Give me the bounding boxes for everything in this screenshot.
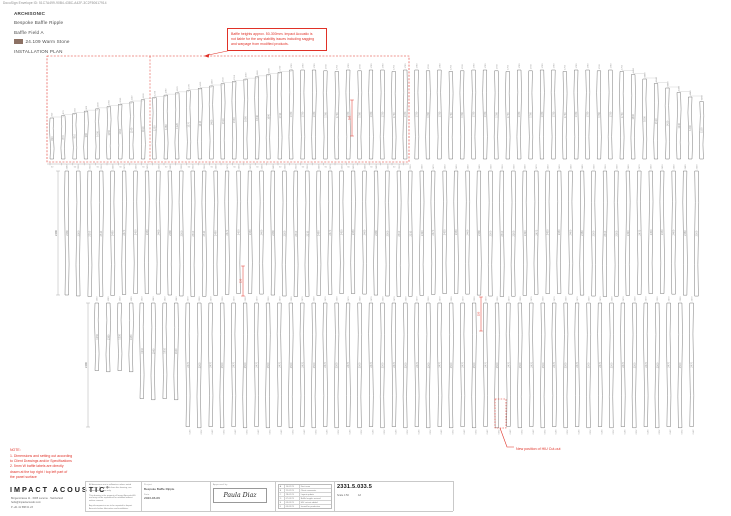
baffle-height-warning-note: Baffle heights approx. 50-300mm. Impact … [227,28,327,51]
svg-text:60: 60 [325,167,328,169]
disclaimer-paragraph: All dimensions are in millimetres unless… [89,484,137,493]
svg-text:2470: 2470 [188,430,190,436]
svg-text:2470: 2470 [552,361,556,367]
baffle-field-label: Baffle Field A [14,30,70,35]
svg-text:1910: 1910 [165,296,167,302]
notes-title: NOTE: [10,448,72,453]
svg-text:2500: 2500 [695,230,699,236]
svg-text:1690: 1690 [266,113,270,119]
svg-text:2500: 2500 [611,296,613,302]
svg-text:2510: 2510 [500,230,504,236]
svg-text:2500: 2500 [520,296,522,302]
svg-text:1230: 1230 [154,90,156,96]
svg-text:2510: 2510 [605,164,607,170]
svg-text:1760: 1760 [428,64,430,70]
svg-text:2500: 2500 [680,296,682,302]
svg-text:2470: 2470 [575,361,579,367]
titleblock-divider [453,481,454,511]
svg-text:2450: 2450 [134,229,138,235]
svg-text:2500: 2500 [488,230,492,236]
svg-text:1050: 1050 [107,129,111,135]
svg-text:2460: 2460 [674,164,676,170]
svg-text:2500: 2500 [449,362,453,368]
svg-text:2470: 2470 [234,430,236,436]
svg-text:2470: 2470 [646,296,648,302]
svg-text:2470: 2470 [463,296,465,302]
svg-text:1780: 1780 [439,63,441,69]
svg-text:1750: 1750 [508,64,510,70]
colour-swatch [14,39,23,44]
svg-text:1090: 1090 [118,128,122,134]
sheet-header: ARCHISONIC Bespoke Baffle Ripple Baffle … [14,11,70,54]
svg-text:2490: 2490 [525,164,527,170]
svg-text:1780: 1780 [551,111,555,117]
svg-text:2470: 2470 [623,430,625,436]
title-block: IMPACT ACOUSTIC® Bürgenstrasse 11 · 6005… [0,480,731,516]
svg-text:820: 820 [52,112,54,116]
svg-text:1760: 1760 [599,64,601,70]
svg-text:2470: 2470 [669,430,671,436]
svg-text:2450: 2450 [445,164,447,170]
svg-text:2500: 2500 [566,430,568,436]
svg-text:2450: 2450 [248,229,252,235]
svg-text:2480: 2480 [67,164,69,170]
svg-text:1350: 1350 [97,296,99,302]
svg-text:2500: 2500 [289,362,293,368]
svg-text:60: 60 [347,167,350,169]
svg-text:2500: 2500 [291,296,293,302]
svg-text:2490: 2490 [111,230,115,236]
svg-text:2500: 2500 [678,362,682,368]
svg-text:2490: 2490 [216,164,218,170]
svg-text:1350: 1350 [118,333,122,339]
svg-text:2470: 2470 [577,296,579,302]
svg-text:2500: 2500 [632,362,636,368]
svg-text:2480: 2480 [273,164,275,170]
svg-text:1760: 1760 [358,111,362,117]
svg-text:2450: 2450 [557,229,561,235]
svg-text:2500: 2500 [222,430,224,436]
svg-text:2510: 2510 [90,164,92,170]
svg-text:2480: 2480 [374,230,378,236]
svg-text:2510: 2510 [204,164,206,170]
svg-text:1460: 1460 [209,119,213,125]
revision-cell: First issue [300,485,331,488]
svg-text:2470: 2470 [186,361,190,367]
svg-text:2470: 2470 [438,361,442,367]
svg-text:2500: 2500 [359,296,361,302]
svg-text:2460: 2460 [569,229,573,235]
svg-text:2510: 2510 [193,164,195,170]
svg-text:2470: 2470 [639,164,641,170]
svg-text:2470: 2470 [461,361,465,367]
svg-text:60: 60 [370,167,373,169]
svg-text:2500: 2500 [405,430,407,436]
svg-text:2480: 2480 [170,164,172,170]
svg-text:2510: 2510 [99,230,103,236]
svg-text:60: 60 [393,167,396,169]
svg-text:1690: 1690 [268,67,270,73]
svg-text:1760: 1760 [323,111,327,117]
svg-text:2500: 2500 [680,430,682,436]
svg-text:1510: 1510 [223,76,225,82]
svg-text:1780: 1780 [380,111,384,117]
svg-text:2500: 2500 [520,430,522,436]
svg-text:2480: 2480 [580,230,584,236]
svg-text:2500: 2500 [428,430,430,436]
svg-text:60: 60 [256,167,259,169]
svg-text:1640: 1640 [255,114,259,120]
svg-text:2480: 2480 [683,230,687,236]
svg-text:1140: 1140 [130,127,134,133]
svg-text:1780: 1780 [483,111,487,117]
svg-text:60: 60 [142,167,145,169]
svg-text:2450: 2450 [651,164,653,170]
svg-text:1320: 1320 [175,122,179,128]
approved-by-label: Approved by [213,484,271,486]
svg-text:2500: 2500 [614,230,618,236]
svg-text:2450: 2450 [342,164,344,170]
svg-text:1780: 1780 [576,63,578,69]
svg-text:1090: 1090 [120,97,122,103]
svg-text:1780: 1780 [382,63,384,69]
svg-text:2500: 2500 [696,164,698,170]
svg-text:1760: 1760 [325,64,327,70]
svg-text:2500: 2500 [268,430,270,436]
svg-text:2470: 2470 [534,229,538,235]
svg-text:960: 960 [84,132,88,137]
svg-text:1330: 1330 [677,122,681,128]
revision-cell: 21.02.23 [285,489,300,492]
general-notes: NOTE: 1. Dimensions and setting out acco… [10,448,72,480]
svg-text:2460: 2460 [158,164,160,170]
titleblock-divider [210,481,211,511]
scale-row: Scale 1:50 A3 [337,494,372,497]
svg-text:2470: 2470 [255,361,259,367]
material-colour-row: 24.109 Warm Stone [14,39,70,44]
svg-text:1750: 1750 [337,64,339,70]
brand-name: ARCHISONIC [14,11,70,16]
svg-text:1240: 1240 [688,125,692,131]
revision-cell: 28.02.23 [285,493,300,496]
svg-text:2500: 2500 [495,362,499,368]
svg-text:1760: 1760 [496,64,498,70]
svg-text:60: 60 [97,167,100,169]
svg-text:1780: 1780 [474,63,476,69]
svg-text:2500: 2500 [268,296,270,302]
revision-row: F09.03.23Issued for production [279,505,331,508]
svg-text:2470: 2470 [417,296,419,302]
approval-block: Approved by Paula Diaz [213,484,271,503]
svg-text:1050: 1050 [109,99,111,105]
svg-text:2470: 2470 [554,296,556,302]
svg-text:2460: 2460 [261,164,263,170]
sheet-size: A3 [358,494,361,497]
svg-text:1780: 1780 [485,63,487,69]
svg-text:1370: 1370 [187,121,191,127]
svg-text:2450: 2450 [454,229,458,235]
svg-text:1780: 1780 [417,63,419,69]
svg-text:1780: 1780 [291,63,293,69]
svg-text:1410: 1410 [200,81,202,87]
svg-text:2500: 2500 [474,296,476,302]
field-value: 2023-03-09 [144,496,204,500]
svg-text:2460: 2460 [259,229,263,235]
svg-text:2510: 2510 [101,164,103,170]
colour-code-label: 24.109 Warm Stone [26,39,70,44]
revision-cell: 07.03.23 [285,497,300,500]
svg-text:960: 960 [86,105,88,109]
disclaimer-text: All dimensions are in millimetres unless… [89,484,137,513]
svg-text:1350: 1350 [95,333,99,339]
svg-text:1780: 1780 [472,111,476,117]
svg-text:2510: 2510 [294,230,298,236]
svg-text:1760: 1760 [494,111,498,117]
svg-text:1760: 1760 [426,111,430,117]
svg-text:2500: 2500 [426,362,430,368]
svg-text:2470: 2470 [302,430,304,436]
svg-text:2470: 2470 [279,430,281,436]
svg-text:2460: 2460 [571,164,573,170]
svg-text:2470: 2470 [669,296,671,302]
svg-text:1940: 1940 [176,296,178,302]
svg-text:2450: 2450 [340,229,344,235]
svg-text:2470: 2470 [323,361,327,367]
titleblock-divider [141,481,142,511]
svg-text:1750: 1750 [620,112,624,118]
svg-text:1510: 1510 [221,118,225,124]
svg-text:60: 60 [188,167,191,169]
svg-text:2490: 2490 [214,230,218,236]
svg-text:1780: 1780 [553,63,555,69]
svg-text:1750: 1750 [335,112,339,118]
svg-text:2490: 2490 [628,164,630,170]
svg-text:2470: 2470 [371,430,373,436]
svg-text:1910: 1910 [140,347,144,353]
svg-text:1000: 1000 [95,130,99,136]
svg-text:2490: 2490 [317,230,321,236]
svg-text:1780: 1780 [312,111,316,117]
revision-cell: HIU cut-out added [300,501,331,504]
svg-text:1280: 1280 [166,88,168,94]
svg-text:1380: 1380 [131,296,133,302]
svg-text:1780: 1780 [301,111,305,117]
svg-text:1190: 1190 [141,126,145,132]
svg-text:1780: 1780 [608,111,612,117]
svg-text:2470: 2470 [369,361,373,367]
svg-text:1750: 1750 [565,64,567,70]
svg-text:2510: 2510 [410,164,412,170]
svg-text:2470: 2470 [463,430,465,436]
svg-text:1600: 1600 [246,72,248,78]
signature: Paula Diaz [223,492,256,499]
svg-text:1730: 1730 [280,65,282,71]
svg-text:1320: 1320 [177,86,179,92]
svg-text:60: 60 [119,167,122,169]
svg-text:2480: 2480 [271,230,275,236]
svg-text:2450: 2450 [135,164,137,170]
svg-text:2470: 2470 [330,164,332,170]
svg-text:2510: 2510 [397,230,401,236]
svg-text:2470: 2470 [188,296,190,302]
svg-text:1600: 1600 [643,116,647,122]
svg-text:2460: 2460 [156,229,160,235]
svg-text:1940: 1940 [174,348,178,354]
svg-text:2500: 2500 [245,296,247,302]
svg-text:2470: 2470 [486,430,488,436]
svg-text:2500: 2500 [513,164,515,170]
svg-text:2470: 2470 [277,361,281,367]
svg-text:2510: 2510 [88,230,92,236]
svg-text:2470: 2470 [577,430,579,436]
svg-text:2470: 2470 [431,229,435,235]
svg-text:910: 910 [75,107,77,111]
svg-text:2500: 2500 [179,230,183,236]
svg-text:1600: 1600 [244,116,248,122]
revision-cell: Baffle lengths revised [300,497,331,500]
svg-text:2500: 2500 [405,296,407,302]
svg-text:1760: 1760 [529,111,533,117]
svg-text:2500: 2500 [387,164,389,170]
svg-text:2500: 2500 [543,296,545,302]
svg-text:2500: 2500 [451,430,453,436]
svg-text:1750: 1750 [622,64,624,70]
svg-text:2470: 2470 [623,296,625,302]
svg-text:2470: 2470 [392,361,396,367]
svg-text:2460: 2460 [466,229,470,235]
revision-cell: 09.03.23 [285,505,300,508]
svg-text:2490: 2490 [319,164,321,170]
docusign-envelope-id: DocuSign Envelope ID: 51C7A499-90B4-438C… [3,1,107,5]
svg-text:1690: 1690 [631,113,635,119]
drawing-number-block: 2331.5.033.5 Scale 1:50 A3 [337,484,372,497]
svg-text:2470: 2470 [637,229,641,235]
svg-text:2470: 2470 [600,296,602,302]
svg-text:2470: 2470 [600,430,602,436]
svg-text:60: 60 [211,167,214,169]
scale-value: Scale 1:50 [337,494,349,497]
svg-text:2490: 2490 [626,230,630,236]
svg-text:2480: 2480 [84,361,88,368]
svg-text:1000: 1000 [97,102,99,108]
svg-text:2470: 2470 [646,430,648,436]
svg-text:1460: 1460 [211,79,213,85]
svg-text:1780: 1780 [369,111,373,117]
svg-text:1750: 1750 [449,112,453,118]
svg-text:1380: 1380 [106,334,110,340]
svg-text:2500: 2500 [634,430,636,436]
svg-text:2500: 2500 [266,362,270,368]
svg-text:1410: 1410 [198,120,202,126]
signature-box: Paula Diaz [213,488,267,503]
svg-text:1780: 1780 [588,63,590,69]
svg-text:2470: 2470 [690,361,694,367]
svg-text:2470: 2470 [348,430,350,436]
note-line: 2. 5mm W baffle labels are directly [10,464,72,469]
svg-text:2470: 2470 [232,361,236,367]
svg-text:870: 870 [61,135,65,140]
svg-text:2500: 2500 [181,164,183,170]
svg-text:2500: 2500 [564,362,568,368]
svg-text:2470: 2470 [257,430,259,436]
svg-text:2490: 2490 [422,164,424,170]
svg-text:1280: 1280 [164,124,168,130]
svg-text:2510: 2510 [502,164,504,170]
svg-text:2450: 2450 [250,164,252,170]
svg-text:2500: 2500 [222,296,224,302]
titleblock-divider [275,481,276,511]
svg-text:2470: 2470 [692,430,694,436]
svg-text:2500: 2500 [657,296,659,302]
svg-text:2460: 2460 [363,229,367,235]
svg-text:2470: 2470 [433,164,435,170]
svg-text:2500: 2500 [428,296,430,302]
titleblock-divider [334,481,335,511]
svg-text:2450: 2450 [351,229,355,235]
svg-text:2490: 2490 [523,230,527,236]
svg-text:2510: 2510 [399,164,401,170]
svg-text:1510: 1510 [654,118,658,124]
svg-text:1780: 1780 [303,63,305,69]
svg-text:1750: 1750 [394,64,396,70]
product-name: Bespoke Baffle Ripple [14,20,70,25]
svg-text:1780: 1780 [403,111,407,117]
view-title: INSTALLATION PLAN [14,49,70,54]
svg-text:2500: 2500 [609,362,613,368]
svg-text:820: 820 [50,136,54,141]
svg-text:2470: 2470 [325,430,327,436]
svg-text:2460: 2460 [672,229,676,235]
svg-text:1780: 1780 [542,63,544,69]
svg-text:60: 60 [165,167,168,169]
svg-text:1940: 1940 [151,348,155,354]
svg-text:1420: 1420 [665,120,669,126]
svg-text:2500: 2500 [451,296,453,302]
svg-text:2460: 2460 [364,164,366,170]
svg-text:1550: 1550 [234,74,236,80]
svg-text:2460: 2460 [467,164,469,170]
svg-text:2470: 2470 [508,430,510,436]
svg-text:2500: 2500 [474,430,476,436]
svg-text:2450: 2450 [237,229,241,235]
svg-text:1780: 1780 [405,63,407,69]
address-line: P +41 41 588 01 23 [11,506,63,510]
svg-text:2470: 2470 [211,430,213,436]
svg-text:1780: 1780 [437,111,441,117]
svg-text:2450: 2450 [443,229,447,235]
svg-text:2500: 2500 [335,362,339,368]
svg-text:1380: 1380 [108,296,110,302]
svg-text:2500: 2500 [490,164,492,170]
svg-text:2470: 2470 [325,296,327,302]
svg-text:2470: 2470 [417,430,419,436]
svg-text:2500: 2500 [587,362,591,368]
revision-cell: 09.03.23 [285,501,300,504]
svg-text:2470: 2470 [529,361,533,367]
svg-text:2450: 2450 [145,229,149,235]
svg-text:2470: 2470 [227,164,229,170]
svg-text:2490: 2490 [420,230,424,236]
svg-text:2470: 2470 [211,296,213,302]
warning-line: Baffle heights approx. 50-300mm. Impact … [231,32,323,37]
svg-text:2470: 2470 [531,296,533,302]
svg-text:2480: 2480 [65,230,69,236]
svg-text:2450: 2450 [649,229,653,235]
svg-text:2480: 2480 [54,229,58,236]
svg-text:1760: 1760 [597,111,601,117]
svg-text:1750: 1750 [451,64,453,70]
svg-text:2500: 2500 [616,164,618,170]
